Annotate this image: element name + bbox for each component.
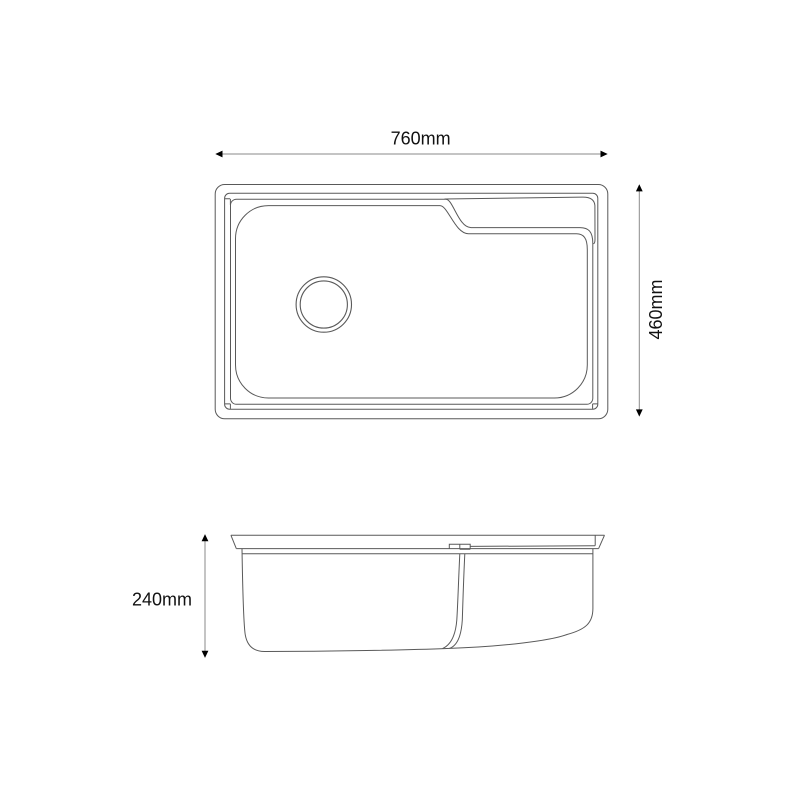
svg-text:460mm: 460mm xyxy=(646,279,666,339)
svg-text:760mm: 760mm xyxy=(391,129,451,149)
svg-text:240mm: 240mm xyxy=(132,590,192,610)
